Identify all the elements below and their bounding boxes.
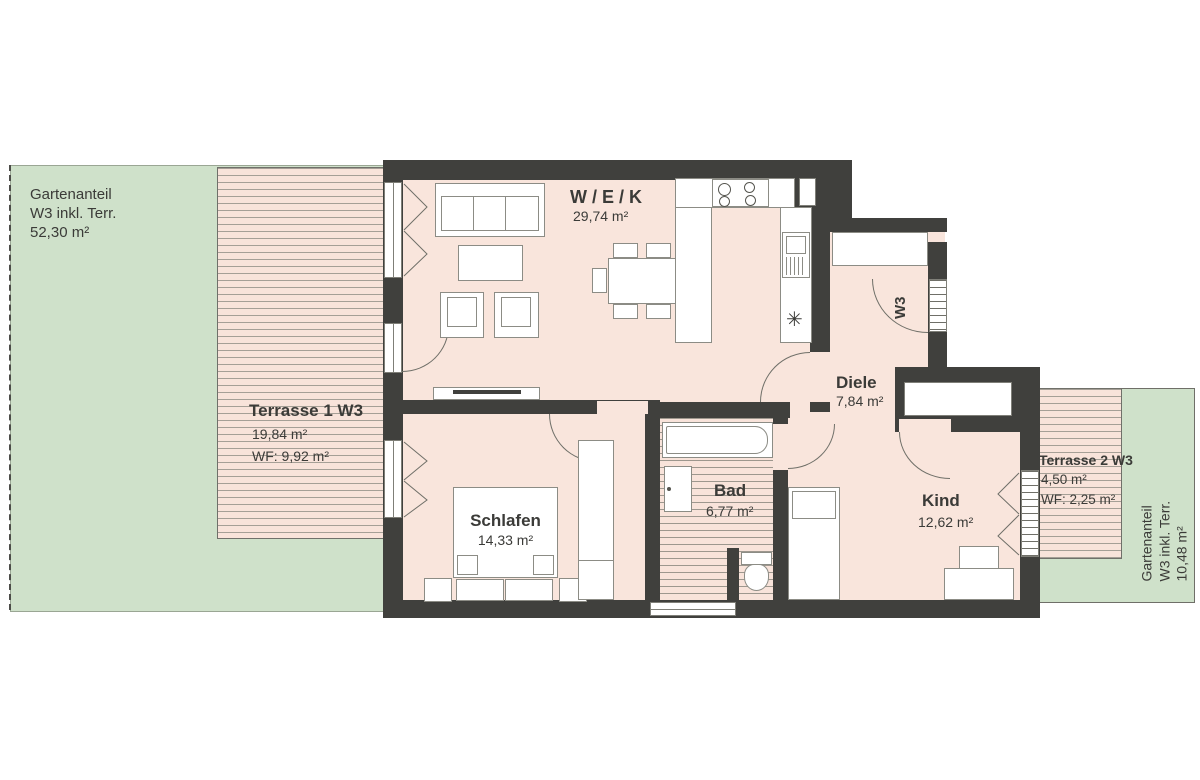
terrace1-wf: WF: 9,92 m² [252, 448, 329, 466]
burner-icon [744, 182, 755, 193]
bed-bench [456, 579, 504, 601]
wall [727, 548, 739, 600]
nightstand [424, 578, 452, 602]
dining-chair [613, 243, 638, 258]
property-line-dashed [9, 165, 11, 610]
door-gap-schlafen [597, 401, 648, 414]
dining-chair [646, 304, 671, 319]
room-bad-name: Bad [714, 480, 746, 501]
room-schlafen-area: 14,33 m² [453, 532, 558, 550]
entrance-threshold [929, 279, 947, 332]
hall-closet [832, 232, 928, 266]
room-wek-area: 29,74 m² [573, 208, 628, 226]
window-casement-icon [996, 472, 1020, 556]
toilet-bowl [744, 564, 769, 591]
fridge-vent-icon [786, 257, 806, 275]
sink-symbol-icon: ✳ [786, 308, 803, 333]
bed-bench [505, 579, 553, 601]
garden-left-label: Gartenanteil W3 inkl. Terr. 52,30 m² [30, 186, 116, 242]
entrance-label: W3 [892, 285, 910, 319]
door-gap-wek-diele [810, 352, 830, 402]
room-wek-name: W / E / K [570, 186, 642, 209]
sofa-cushion [505, 196, 539, 231]
room-kind-name: Kind [922, 490, 960, 511]
armchair-cushion [501, 297, 531, 327]
window-schlafen [384, 440, 402, 518]
garden-left-line1: Gartenanteil [30, 186, 116, 205]
terrace2-wf: WF: 2,25 m² [1041, 492, 1115, 509]
dining-chair [613, 304, 638, 319]
terrace1-name: Terrasse 1 W3 [249, 400, 363, 421]
wardrobe-divider [579, 560, 613, 561]
terrace1-deck [217, 167, 387, 539]
wall [830, 218, 947, 232]
pillow [457, 555, 478, 575]
tv [453, 390, 521, 394]
wall [655, 402, 790, 418]
coffee-table [458, 245, 523, 281]
sofa-cushion [473, 196, 506, 231]
garden-right-line3: 10,48 m² [1174, 427, 1192, 582]
wall-niche [799, 178, 816, 206]
floor-plan: Gartenanteil W3 inkl. Terr. 52,30 m² Ter… [0, 0, 1200, 780]
wall [645, 414, 660, 600]
terrace-door-wek [384, 323, 402, 373]
garden-left-line3: 52,30 m² [30, 224, 116, 243]
desk-chair [959, 546, 999, 569]
dining-chair [592, 268, 607, 293]
sofa-cushion [441, 196, 474, 231]
kitchen-island [675, 207, 712, 343]
garden-right-line2: W3 inkl. Terr. [1156, 427, 1174, 582]
wardrobe [578, 440, 614, 600]
door-gap-bad [773, 424, 788, 470]
window-casement-icon [403, 441, 429, 518]
room-kind-area: 12,62 m² [918, 514, 973, 532]
door-gap-kind [899, 419, 951, 432]
garden-right-line1: Gartenanteil [1139, 427, 1157, 582]
terrace2-name: Terrasse 2 W3 [1039, 452, 1133, 470]
room-diele-area: 7,84 m² [836, 393, 883, 411]
wall [383, 160, 832, 180]
fridge-door [786, 236, 806, 254]
pillow [792, 491, 836, 519]
bathtub-basin [666, 426, 768, 454]
window-casement-icon [403, 183, 429, 277]
burner-icon [719, 196, 730, 207]
garden-left-line2: W3 inkl. Terr. [30, 205, 116, 224]
terrace2-area: 4,50 m² [1041, 472, 1087, 489]
burner-icon [745, 195, 756, 206]
window-wek [384, 182, 402, 278]
pillow [533, 555, 554, 575]
room-schlafen-name: Schlafen [453, 510, 558, 531]
terrace1-area: 19,84 m² [252, 426, 307, 444]
built-in-closet [904, 382, 1012, 416]
armchair-cushion [447, 297, 477, 327]
room-bad-area: 6,77 m² [706, 503, 753, 521]
terrace-door-kind [1021, 470, 1039, 557]
room-diele-name: Diele [836, 372, 877, 393]
window-bad [650, 602, 736, 616]
washbasin-tap-icon [667, 487, 671, 491]
desk [944, 568, 1014, 600]
garden-right-label: Gartenanteil W3 inkl. Terr. 10,48 m² [1139, 427, 1193, 582]
dining-chair [646, 243, 671, 258]
burner-icon [718, 183, 731, 196]
dining-table [608, 258, 677, 304]
